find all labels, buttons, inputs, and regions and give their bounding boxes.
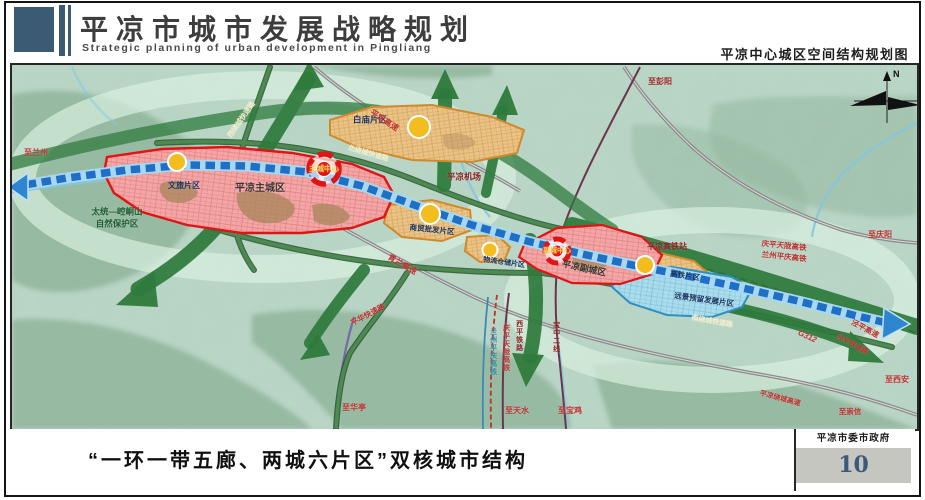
map-label-road-jingping: 泾平高速 — [850, 318, 880, 339]
map-label-road-west-ring: 西绕城快速路 — [227, 101, 257, 140]
map-label-rail-lzpq: 兰州平庆高铁 — [761, 251, 807, 264]
map-label-reserve-line2: 自然保护区 — [96, 220, 139, 229]
map-label-zone-wuliu: 物流仓储片区 — [483, 256, 526, 269]
planning-document-page: 平凉市城市发展战略规划 Strategic planning of urban … — [0, 0, 925, 500]
structure-caption: “一环一带五廊、两城六片区”双核城市结构 — [88, 444, 528, 473]
publisher-name: 平凉市委市政府 — [796, 429, 911, 448]
map-label-dest-chongxin: 至崇信 — [839, 408, 862, 416]
page-number: 10 — [796, 448, 911, 483]
caption-bar: “一环一带五廊、两城六片区”双核城市结构 平凉市委市政府 10 — [10, 429, 915, 491]
map-label-dest-xian: 至西安 — [885, 376, 909, 384]
map-label-road-qinglan: 青兰高速 — [386, 253, 418, 276]
map-label-zone-gaotie: 高铁片区 — [670, 270, 701, 282]
map-label-zone-sub-city: 平凉副城区 — [561, 260, 607, 279]
map-label-rail-baozhong-v: 宝中二线 — [552, 321, 559, 353]
map-label-core-sub: 副城中心 — [543, 247, 571, 254]
map-label-road-pinghua: 平华快速路 — [350, 303, 387, 328]
map-label-rail-lzpq-v: 兰州平庆高铁 — [489, 328, 496, 376]
map-labels: 至兰州太统—崆峒山自然保护区文旅片区白庙片区西绕城快速路平定高速北绕城快速路平凉… — [12, 65, 917, 429]
map-label-core-main: 主城中心 — [309, 165, 339, 173]
map-label-rail-xiping-v: 西平铁路 — [515, 320, 522, 352]
planning-map: N 至兰州太统—崆峒山自然保护区文旅片区白庙片区西绕城快速路平定高速北绕城快速路… — [10, 63, 919, 431]
map-label-road-north-ring: 北绕城快速路 — [347, 145, 389, 164]
map-label-road-raocheng: 平凉绕城高速 — [759, 390, 801, 408]
map-label-road-jingping-ks: 泾平快速路 — [835, 334, 869, 357]
map-label-hsr-station: 平凉高铁站 — [647, 243, 687, 251]
publisher-box: 平凉市委市政府 10 — [794, 429, 911, 491]
map-label-zone-yuanjing: 远景预留发展片区 — [674, 292, 735, 308]
page-header: 平凉市城市发展战略规划 Strategic planning of urban … — [0, 0, 925, 62]
logo-bar-thin — [68, 5, 71, 56]
map-label-zone-shangmao: 商贸批发片区 — [409, 224, 455, 237]
logo-bar — [59, 5, 65, 56]
map-label-zone-main-city: 平凉主城区 — [235, 184, 285, 195]
map-label-road-south-ring: 南绕城快速路 — [691, 315, 734, 330]
map-label-dest-baoji: 至宝鸡 — [558, 407, 582, 415]
page-subtitle-en: Strategic planning of urban development … — [82, 42, 432, 54]
map-label-dest-tianshui: 至天水 — [505, 407, 529, 415]
map-label-dest-huating: 至华亭 — [342, 404, 366, 412]
map-label-airport: 平凉机场 — [447, 173, 481, 182]
map-label-zone-wenlv: 文旅片区 — [168, 182, 200, 190]
logo-square — [14, 7, 54, 52]
map-label-dest-lanzhou: 至兰州 — [24, 149, 48, 157]
map-label-reserve-line1: 太统—崆峒山 — [91, 208, 142, 217]
map-label-rail-qptl-v: 庆平天陇高铁 — [502, 324, 509, 372]
map-label-dest-qingyang: 至庆阳 — [868, 231, 892, 239]
map-label-road-g312: G312 — [796, 329, 817, 345]
map-label-dest-pengyang: 至彭阳 — [648, 78, 672, 86]
map-sheet-title: 平凉中心城区空间结构规划图 — [720, 44, 909, 63]
